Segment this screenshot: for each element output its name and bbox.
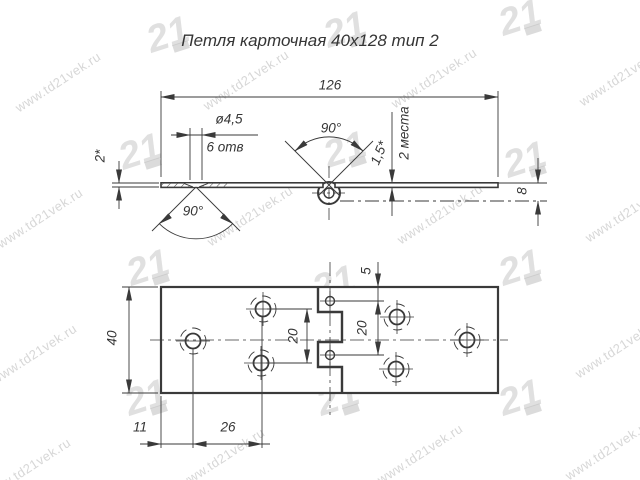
angle-countersink-label: 90° [183,204,203,219]
dim-length-label: 126 [319,78,342,93]
dim-hole-dia-label: ø4,5 [215,112,242,127]
dim-col-spacing-label: 26 [220,420,235,435]
note-places-label: 2 места [397,106,412,159]
dim-pin-edge-label: 5 [359,267,374,275]
dim-hole-spacing-label: 20 [286,328,301,343]
dim-width-label: 40 [105,330,120,345]
dim-thickness-label: 2* [93,150,108,163]
dim-axis-label: 8 [515,187,530,195]
drawing-canvas: www.td21vek.ru www.td21vek.ru www.td21ve… [0,0,640,480]
page-title: Петля карточная 40х128 тип 2 [181,31,438,51]
dim-hole-count-label: 6 отв [206,140,243,155]
dim-pin-spacing-label: 20 [355,320,370,335]
angle-knuckle-label: 90° [321,121,341,136]
dim-edge-hole-label: 11 [133,420,147,435]
drawing-geometry [0,0,640,480]
